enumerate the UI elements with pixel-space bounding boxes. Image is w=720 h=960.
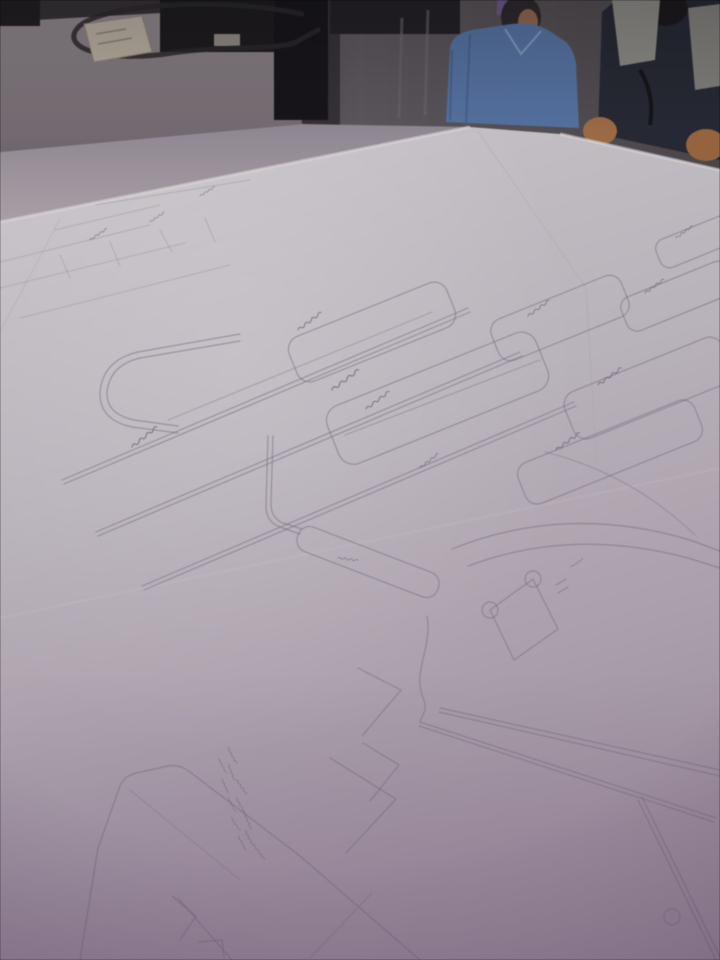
photo-frame [0,0,720,960]
pattern-paper [0,127,720,960]
corner-dark-object [0,0,40,26]
equipment-column [274,0,328,120]
scene-photo [0,0,720,960]
vest-left-panel [612,0,660,66]
equipment-detail [214,34,240,46]
equipment-shelf [330,0,460,34]
